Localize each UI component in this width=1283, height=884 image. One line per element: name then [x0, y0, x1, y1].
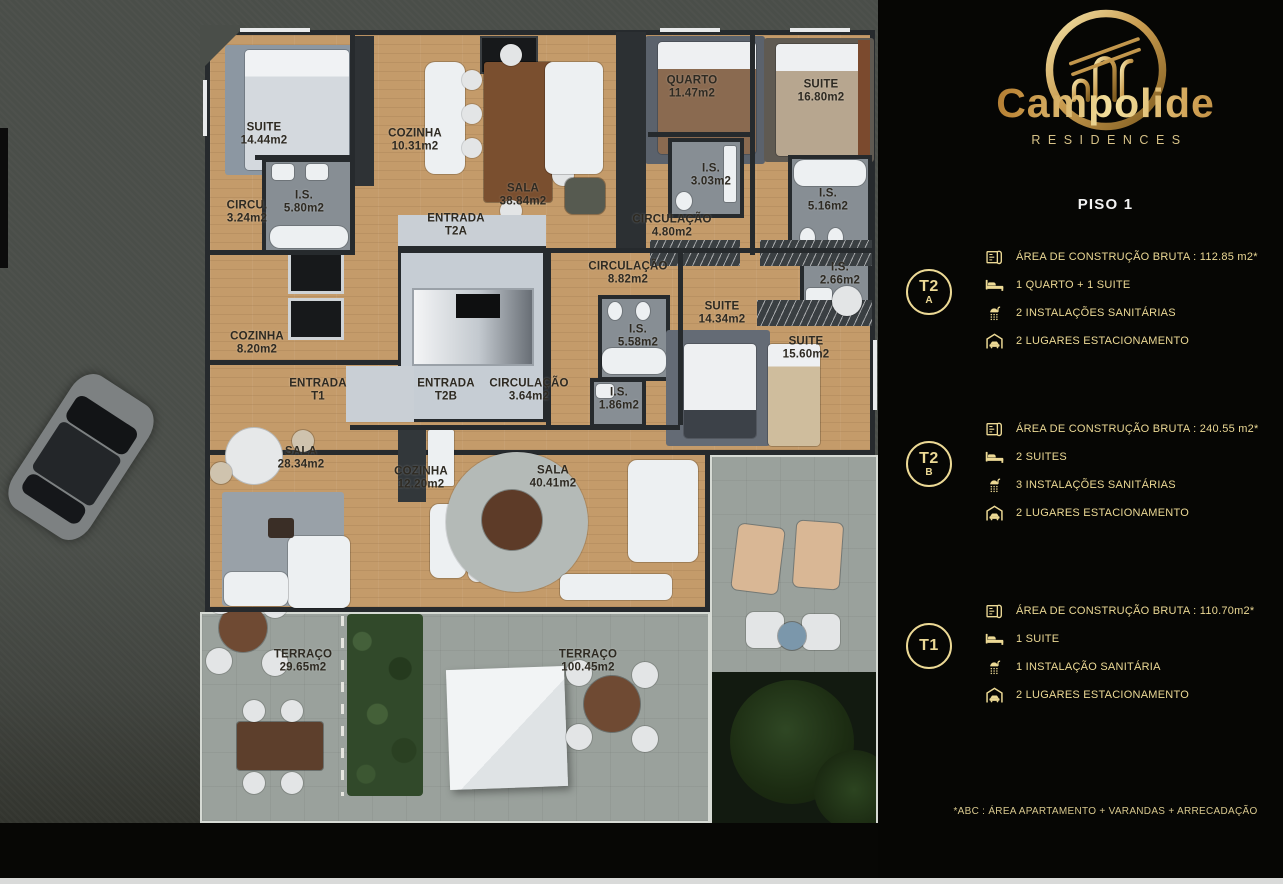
room-label-circula-o-3-64m2: CIRCULAÇÃO3.64m2 — [489, 378, 568, 405]
chair — [632, 662, 658, 688]
wall — [398, 248, 875, 253]
curb-shadow — [0, 128, 8, 268]
room-label-i-s-5-16m2: I.S.5.16m2 — [808, 188, 848, 215]
window — [240, 28, 310, 32]
bottom-border-bar — [0, 878, 1283, 884]
badge-line2: B — [925, 467, 932, 478]
sofa — [288, 536, 350, 608]
room-label-i-s-5-80m2: I.S.5.80m2 — [284, 190, 324, 217]
chair — [566, 724, 592, 750]
unit-spec-row: 1 INSTALAÇÃO SANITÁRIA — [983, 653, 1283, 681]
sun-lounger — [731, 523, 785, 594]
shower-icon — [983, 303, 1005, 323]
unit-spec-text: ÁREA DE CONSTRUÇÃO BRUTA : 112.85 m2* — [1016, 251, 1258, 263]
sofa — [628, 460, 698, 562]
bathtub — [270, 226, 348, 248]
bed-icon — [983, 447, 1005, 467]
unit-badge-t1: T1 — [906, 623, 952, 669]
wall — [350, 425, 680, 430]
window — [203, 80, 207, 136]
round-table-sala40 — [482, 490, 542, 550]
chair — [500, 44, 522, 66]
chair — [281, 772, 303, 794]
kitchen-counter — [352, 36, 374, 186]
sink — [306, 164, 328, 180]
armchair — [832, 286, 862, 316]
room-label-terra-o-29-65m2: TERRAÇO29.65m2 — [274, 649, 332, 676]
brand-subtitle: RESIDENCES — [932, 133, 1283, 147]
chaise — [224, 572, 288, 606]
room-label-i-s-1-86m2: I.S.1.86m2 — [599, 387, 639, 414]
armchair — [802, 614, 840, 650]
unit-spec-row: ÁREA DE CONSTRUÇÃO BRUTA : 240.55 m2* — [983, 415, 1283, 443]
bench — [560, 574, 672, 600]
unit-badge-t2b: T2 B — [906, 441, 952, 487]
chair — [243, 772, 265, 794]
unit-spec-text: 2 SUITES — [1016, 451, 1067, 463]
unit-badge-t2a: T2 A — [906, 269, 952, 315]
window — [873, 340, 877, 410]
room-label-cozinha-12-20m2: COZINHA12.20m2 — [394, 466, 448, 493]
stool — [462, 104, 482, 124]
unit-spec-row: 3 INSTALAÇÕES SANITÁRIAS — [983, 471, 1283, 499]
room-label-i-s-3-03m2: I.S.3.03m2 — [691, 163, 731, 190]
hedge — [347, 614, 423, 796]
wall — [750, 30, 755, 255]
dining-table-terrace — [237, 722, 323, 770]
floorplan-icon — [983, 247, 1005, 267]
bidet — [636, 302, 650, 320]
chair — [281, 700, 303, 722]
unit-spec-row: 2 LUGARES ESTACIONAMENTO — [983, 327, 1283, 355]
unit-spec-row: 2 LUGARES ESTACIONAMENTO — [983, 681, 1283, 709]
room-label-suite-14-34m2: SUITE14.34m2 — [699, 301, 746, 328]
side-table-blue — [778, 622, 806, 650]
footnote: *ABC : ÁREA APARTAMENTO + VARANDAS + ARR… — [928, 806, 1283, 817]
stool — [462, 138, 482, 158]
shower-icon — [983, 475, 1005, 495]
brand-name: Campolide — [928, 80, 1283, 127]
garden — [712, 672, 876, 823]
unit-spec-text: 3 INSTALAÇÕES SANITÁRIAS — [1016, 479, 1176, 491]
room-label-circula-o-4-80m2: CIRCULAÇÃO4.80m2 — [632, 214, 711, 241]
chair — [632, 726, 658, 752]
elevator-shaft — [288, 298, 344, 340]
elevator-shaft — [288, 252, 344, 294]
parking-icon — [983, 331, 1005, 351]
coffee-table — [268, 518, 294, 538]
round-dining-table — [226, 428, 282, 484]
badge-line1: T1 — [919, 638, 939, 654]
room-label-circula-o-8-82m2: CIRCULAÇÃO8.82m2 — [588, 261, 667, 288]
bed-icon — [983, 275, 1005, 295]
room-label-cozinha-10-31m2: COZINHA10.31m2 — [388, 128, 442, 155]
campolide-floorplan-sheet: SUITE14.44m2COZINHA10.31m2QUARTO11.47m2S… — [0, 0, 1283, 884]
unit-spec-text: 2 INSTALAÇÕES SANITÁRIAS — [1016, 307, 1176, 319]
parking-icon — [983, 685, 1005, 705]
bathtub — [602, 348, 666, 374]
unit-spec-row: ÁREA DE CONSTRUÇÃO BRUTA : 110.70m2* — [983, 597, 1283, 625]
unit-spec-text: 2 LUGARES ESTACIONAMENTO — [1016, 335, 1189, 347]
room-label-quarto-11-47m2: QUARTO11.47m2 — [667, 75, 718, 102]
canopy — [446, 666, 568, 790]
badge-line1: T2 — [919, 279, 939, 295]
unit-specs-t1: ÁREA DE CONSTRUÇÃO BRUTA : 110.70m2*1 SU… — [983, 597, 1283, 709]
unit-spec-text: 2 LUGARES ESTACIONAMENTO — [1016, 689, 1189, 701]
room-label-cozinha-8-20m2: COZINHA8.20m2 — [230, 331, 284, 358]
unit-spec-text: 2 LUGARES ESTACIONAMENTO — [1016, 507, 1189, 519]
unit-spec-row: 1 QUARTO + 1 SUITE — [983, 271, 1283, 299]
room-label-circu-3-24m2: CIRCU.3.24m2 — [227, 200, 268, 227]
room-label-suite-16-80m2: SUITE16.80m2 — [798, 79, 845, 106]
floor-title: PISO 1 — [928, 196, 1283, 213]
room-label-sala-28-34m2: SALA28.34m2 — [278, 446, 325, 473]
kitchen-island — [425, 62, 465, 174]
stool — [462, 70, 482, 90]
unit-spec-row: ÁREA DE CONSTRUÇÃO BRUTA : 112.85 m2* — [983, 243, 1283, 271]
floorplan-icon — [983, 419, 1005, 439]
floorplan-render: SUITE14.44m2COZINHA10.31m2QUARTO11.47m2S… — [0, 0, 878, 884]
wall — [678, 253, 683, 425]
room-label-terra-o-100-45m2: TERRAÇO100.45m2 — [559, 649, 617, 676]
window — [790, 28, 850, 32]
sun-lounger — [793, 520, 843, 589]
toilet — [676, 192, 692, 210]
window — [660, 28, 720, 32]
unit-spec-text: 1 INSTALAÇÃO SANITÁRIA — [1016, 661, 1161, 673]
chair — [206, 648, 232, 674]
toilet — [608, 302, 622, 320]
wall — [255, 155, 352, 160]
wall — [350, 30, 355, 255]
wall — [648, 132, 752, 137]
room-label-entrada-t1: ENTRADAT1 — [289, 378, 347, 405]
room-label-sala-40-41m2: SALA40.41m2 — [530, 465, 577, 492]
info-panel: Campolide RESIDENCES PISO 1 T2 A ÁREA DE… — [878, 0, 1283, 884]
bed — [245, 50, 349, 170]
parking-icon — [983, 503, 1005, 523]
unit-spec-row: 2 LUGARES ESTACIONAMENTO — [983, 499, 1283, 527]
floorplan-icon — [983, 601, 1005, 621]
wall — [205, 250, 355, 255]
badge-line1: T2 — [919, 451, 939, 467]
unit-specs-t2a: ÁREA DE CONSTRUÇÃO BRUTA : 112.85 m2*1 Q… — [983, 243, 1283, 355]
armchair-dark — [565, 178, 605, 214]
sofa — [545, 62, 603, 174]
bed — [684, 344, 756, 438]
entry-tile-t1 — [346, 366, 414, 422]
unit-spec-row: 2 SUITES — [983, 443, 1283, 471]
unit-spec-text: ÁREA DE CONSTRUÇÃO BRUTA : 110.70m2* — [1016, 605, 1254, 617]
street-dashed-line — [341, 616, 344, 796]
wall — [205, 360, 400, 365]
dining-table — [484, 62, 552, 202]
room-label-entrada-t2b: ENTRADAT2B — [417, 378, 475, 405]
unit-spec-row: 2 INSTALAÇÕES SANITÁRIAS — [983, 299, 1283, 327]
badge-line2: A — [925, 295, 932, 306]
unit-spec-row: 1 SUITE — [983, 625, 1283, 653]
chair-tan — [210, 462, 232, 484]
elevator-opening — [456, 294, 500, 318]
unit-specs-t2b: ÁREA DE CONSTRUÇÃO BRUTA : 240.55 m2*2 S… — [983, 415, 1283, 527]
bed-icon — [983, 629, 1005, 649]
scene-bottom-dark — [0, 823, 878, 878]
room-label-i-s-5-58m2: I.S.5.58m2 — [618, 324, 658, 351]
shower-icon — [983, 657, 1005, 677]
unit-spec-text: 1 SUITE — [1016, 633, 1059, 645]
bed-frame — [858, 40, 870, 160]
unit-block-t2b: T2 B ÁREA DE CONSTRUÇÃO BRUTA : 240.55 m… — [878, 415, 1283, 527]
round-table-mid — [584, 676, 640, 732]
bathtub — [794, 160, 866, 186]
room-label-entrada-t2a: ENTRADAT2A — [427, 213, 485, 240]
room-label-suite-15-60m2: SUITE15.60m2 — [783, 336, 830, 363]
unit-spec-text: ÁREA DE CONSTRUÇÃO BRUTA : 240.55 m2* — [1016, 423, 1259, 435]
room-label-sala-38-84m2: SALA38.84m2 — [500, 183, 547, 210]
chair — [243, 700, 265, 722]
room-label-i-s-2-66m2: I.S.2.66m2 — [820, 262, 860, 289]
unit-spec-text: 1 QUARTO + 1 SUITE — [1016, 279, 1130, 291]
room-label-suite-14-44m2: SUITE14.44m2 — [241, 122, 288, 149]
unit-block-t1: T1 ÁREA DE CONSTRUÇÃO BRUTA : 110.70m2*1… — [878, 597, 1283, 709]
unit-block-t2a: T2 A ÁREA DE CONSTRUÇÃO BRUTA : 112.85 m… — [878, 243, 1283, 355]
sink — [272, 164, 294, 180]
